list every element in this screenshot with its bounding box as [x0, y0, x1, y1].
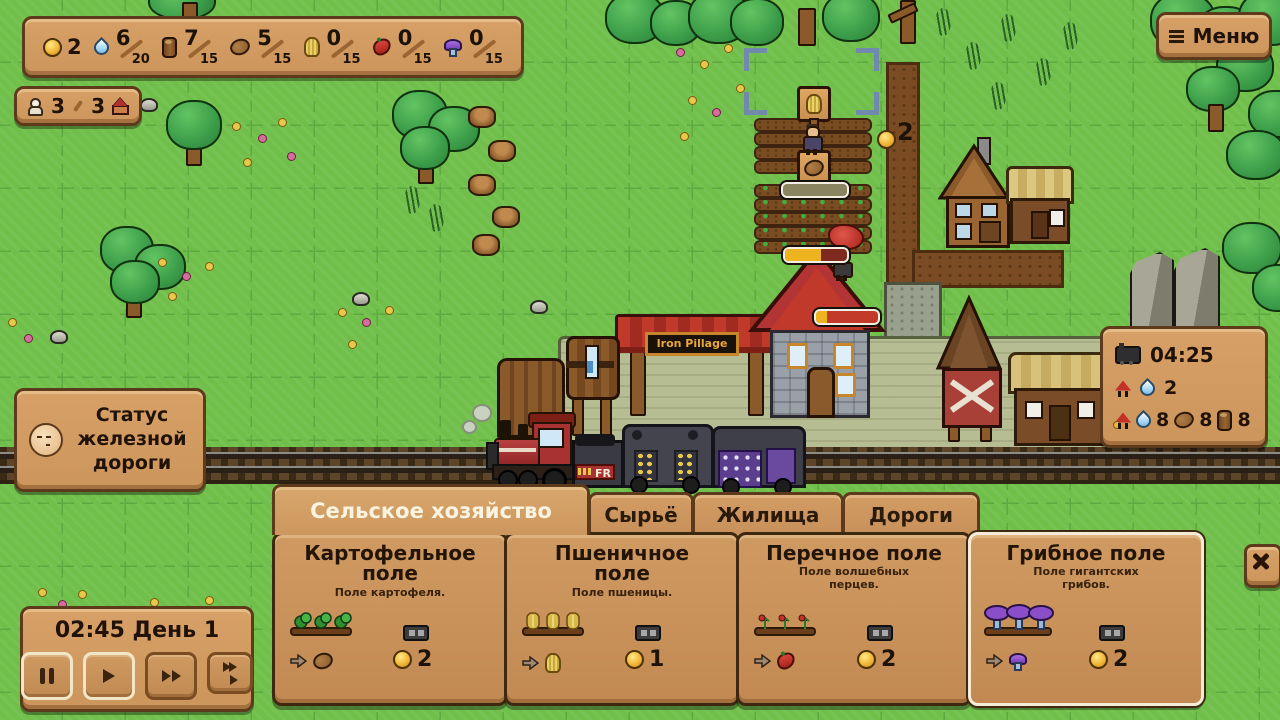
water-tower-barrel[interactable] — [566, 336, 620, 400]
cost-row: 2 — [393, 647, 432, 672]
tree-canopy — [166, 100, 222, 150]
card-pepper-field[interactable]: Перечное поле Поле волшебных перцев. 2 — [736, 532, 972, 706]
flower — [8, 318, 17, 327]
tree-canopy — [822, 0, 880, 42]
soil-row-sprouts — [754, 212, 872, 226]
flower — [688, 96, 697, 105]
play-button[interactable] — [83, 652, 135, 700]
rock — [530, 300, 548, 314]
tree-trunk — [1208, 104, 1224, 132]
warehouse[interactable] — [1014, 388, 1108, 446]
tab-raw-materials[interactable]: Сырьё — [588, 492, 694, 535]
menu-label: Меню — [1193, 24, 1260, 48]
potato-icon — [311, 650, 335, 671]
production-row — [289, 653, 333, 669]
arrival-row: 04:25 — [1115, 343, 1253, 367]
resource-wheat: 015 — [304, 28, 361, 66]
floating-coin-value: 2 — [897, 118, 914, 146]
card-subtitle: Поле пшеницы. — [507, 586, 737, 599]
cost-row: 2 — [857, 647, 896, 672]
tree-canopy — [1226, 130, 1280, 180]
close-build-menu-button[interactable] — [1244, 544, 1280, 588]
flower — [724, 44, 733, 53]
tree-trunk — [798, 8, 816, 46]
demand-value: 2 — [1164, 377, 1177, 399]
card-potato-field[interactable]: Картофельное поле Поле картофеля. 2 — [272, 532, 508, 706]
stone-monolith — [1174, 248, 1220, 334]
water-icon — [1133, 409, 1154, 430]
tab-housing[interactable]: Жилища — [692, 492, 844, 535]
production-row — [521, 653, 561, 673]
cost-row: 2 — [1089, 647, 1128, 672]
cargo-demand-row: 8 8 8 — [1115, 409, 1253, 431]
flower — [338, 308, 347, 317]
potato-icon — [802, 157, 826, 178]
canopy-post — [630, 344, 646, 416]
mushroom-icon — [444, 39, 462, 55]
flower — [232, 122, 241, 131]
production-row — [753, 653, 795, 669]
tab-label: Жилища — [717, 503, 820, 527]
tree-stump — [468, 174, 496, 196]
card-title: Грибное поле — [971, 543, 1201, 563]
flower — [362, 318, 371, 327]
tree-stump — [468, 106, 496, 128]
villager-progress-bar — [781, 245, 851, 265]
resource-wood: 715 — [162, 28, 218, 66]
stone-monolith — [1130, 252, 1174, 334]
cost-row: 1 — [625, 647, 664, 672]
flower — [258, 134, 267, 143]
signal-icon — [1115, 380, 1131, 397]
fern — [935, 8, 951, 36]
storage-slot-icon — [403, 625, 429, 641]
tree-stump — [492, 206, 520, 228]
flower — [78, 590, 87, 599]
card-title: Перечное поле — [739, 543, 969, 563]
water-icon — [1137, 377, 1158, 398]
wheat-crop-sprite — [521, 609, 585, 637]
farmer-unit[interactable] — [802, 126, 820, 156]
population-badge: 3 3 — [14, 86, 142, 126]
rock — [50, 330, 68, 344]
card-title: Картофельное поле — [275, 543, 505, 584]
flower — [287, 152, 296, 161]
flower — [700, 60, 709, 69]
flower — [385, 306, 394, 315]
rock — [352, 292, 370, 306]
cost-value: 2 — [1113, 647, 1128, 672]
fern — [1062, 22, 1078, 50]
flower — [205, 262, 214, 271]
flower — [168, 292, 177, 301]
arrival-time: 04:25 — [1150, 343, 1214, 367]
coin-icon — [857, 650, 876, 669]
potato-icon — [228, 36, 252, 57]
fern — [428, 204, 444, 232]
produces-arrow-icon — [985, 654, 1003, 668]
produces-arrow-icon — [289, 654, 307, 668]
produces-arrow-icon — [521, 656, 539, 670]
card-subtitle: Поле гигантских грибов. — [971, 565, 1201, 591]
passenger-demand-row: 2 — [1115, 377, 1253, 399]
signal-icon — [1115, 412, 1131, 429]
pepper-icon — [371, 37, 393, 57]
card-mushroom-field[interactable]: Грибное поле Поле гигантских грибов. 2 — [968, 532, 1204, 706]
demand-value: 8 — [1156, 409, 1169, 431]
tab-label: Сельское хозяйство — [310, 499, 552, 523]
field-progress-bar — [779, 180, 851, 200]
wood-icon — [162, 37, 177, 58]
flower — [158, 258, 167, 267]
cost-value: 1 — [649, 647, 664, 672]
population-current: 3 — [51, 94, 65, 118]
railroad-status-button[interactable]: Статус железной дороги — [14, 388, 206, 492]
coin-icon — [43, 38, 62, 57]
production-row — [985, 653, 1027, 669]
storage-slot-icon — [635, 625, 661, 641]
silo-roof — [934, 294, 1004, 372]
resource-water: 620 — [94, 28, 150, 66]
wheat-icon — [304, 37, 320, 57]
tab-agriculture[interactable]: Сельское хозяйство — [272, 484, 590, 535]
pause-button[interactable] — [21, 652, 73, 700]
fast-forward-button[interactable] — [145, 652, 197, 700]
flower — [676, 48, 685, 57]
resource-bar: 2 620 715 515 015 015 015 — [22, 16, 524, 78]
person-icon — [27, 98, 44, 115]
potato-crop-sprite — [289, 609, 353, 637]
coin-icon — [625, 650, 644, 669]
station-house[interactable] — [770, 330, 870, 418]
menu-button[interactable]: Меню — [1156, 12, 1272, 60]
fern — [1000, 14, 1016, 42]
flower — [205, 596, 214, 605]
wood-icon — [1217, 410, 1232, 431]
tree-canopy — [400, 126, 450, 170]
card-subtitle: Поле картофеля. — [275, 586, 505, 599]
flower — [680, 132, 689, 141]
fern — [1035, 58, 1051, 86]
rock — [140, 98, 158, 112]
resource-mushroom: 015 — [444, 28, 503, 66]
tab-label: Дороги — [869, 503, 953, 527]
card-subtitle: Поле волшебных перцев. — [739, 565, 969, 591]
population-max: 3 — [91, 94, 105, 118]
demand-value: 8 — [1199, 409, 1212, 431]
wheat-field-sign[interactable] — [797, 86, 831, 122]
mushroom-icon — [1009, 653, 1027, 669]
flower — [712, 108, 721, 117]
wheat-icon — [545, 653, 561, 673]
silo-body[interactable] — [942, 368, 1002, 428]
coin-icon — [877, 130, 896, 149]
thatch-hut[interactable] — [1010, 198, 1070, 244]
flower — [243, 158, 252, 167]
selection-corner — [856, 92, 879, 115]
coin-icon — [393, 650, 412, 669]
wheat-icon — [806, 94, 822, 114]
train-schedule-panel: 04:25 2 8 8 8 — [1100, 326, 1268, 448]
potato-icon — [1172, 409, 1196, 430]
wood-house-roof — [938, 136, 1010, 200]
cost-value: 2 — [417, 647, 432, 672]
water-icon — [91, 36, 112, 57]
railroad-status-label: Статус железной дороги — [73, 404, 191, 475]
time-panel: 02:45 День 1 — [20, 606, 254, 712]
train-icon — [1115, 346, 1141, 364]
hamburger-icon — [1169, 30, 1184, 33]
selection-corner — [744, 92, 767, 115]
tree-stump — [488, 140, 516, 162]
fastest-button[interactable] — [207, 652, 253, 694]
tab-label: Сырьё — [604, 503, 677, 527]
card-wheat-field[interactable]: Пшеничное поле Поле пшеницы. 1 — [504, 532, 740, 706]
tower-leg — [600, 394, 612, 436]
pepper-icon — [775, 651, 797, 671]
station-sign: Iron Pillage — [645, 332, 739, 356]
soil-row-sprouts — [754, 198, 872, 212]
resource-potato: 515 — [230, 28, 291, 66]
pepper-crop-sprite — [753, 609, 817, 637]
coin-icon — [1089, 650, 1108, 669]
wood-house[interactable] — [946, 196, 1010, 248]
resource-pepper: 015 — [373, 28, 432, 66]
fern — [990, 82, 1006, 110]
face-icon — [29, 423, 63, 457]
storage-slot-icon — [867, 625, 893, 641]
clock-text: 02:45 День 1 — [55, 618, 219, 643]
fern — [404, 186, 420, 214]
canopy-post — [748, 344, 764, 416]
game-map[interactable]: 2 — [0, 0, 1280, 720]
house-icon — [112, 99, 129, 114]
coin-count: 2 — [67, 35, 82, 59]
resource-coins: 2 — [43, 35, 82, 59]
tab-roads[interactable]: Дороги — [842, 492, 980, 535]
tree-canopy — [110, 260, 160, 304]
produces-arrow-icon — [753, 654, 771, 668]
tree-canopy — [730, 0, 784, 46]
flower — [278, 118, 287, 127]
tree-stump — [472, 234, 500, 256]
card-title: Пшеничное поле — [507, 543, 737, 584]
cost-value: 2 — [881, 647, 896, 672]
demand-value: 8 — [1237, 409, 1250, 431]
house-progress-bar — [812, 307, 882, 327]
flower — [38, 588, 47, 597]
selection-corner — [856, 48, 879, 71]
fern — [965, 42, 981, 70]
storage-slot-icon — [1099, 625, 1125, 641]
slash-divider — [73, 100, 83, 112]
flower — [24, 334, 33, 343]
selection-corner — [744, 48, 767, 71]
mushroom-crop-sprite — [983, 603, 1057, 637]
flower — [182, 272, 191, 281]
flower — [348, 340, 357, 349]
